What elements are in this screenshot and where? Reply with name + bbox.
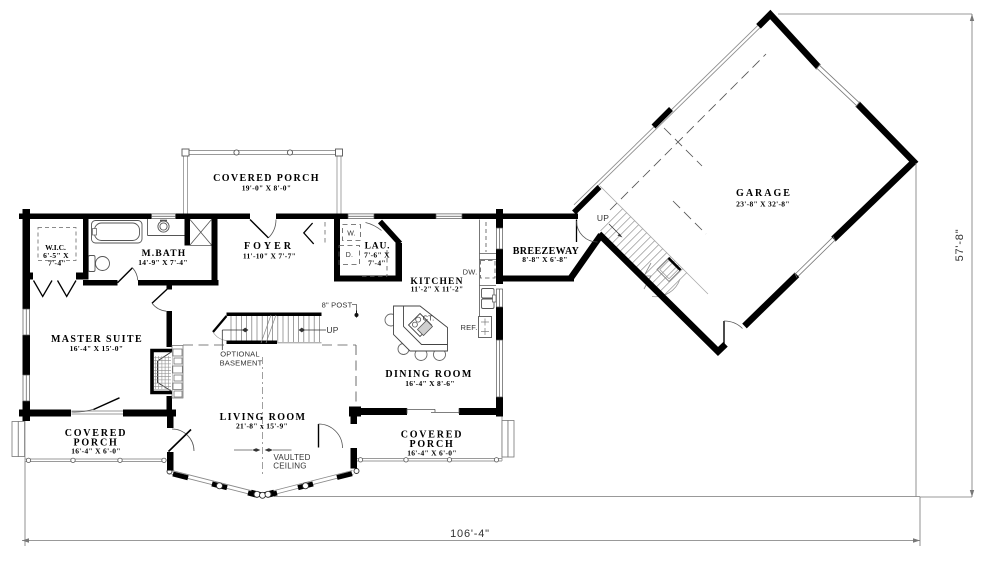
svg-text:14'-9" X 7'-4": 14'-9" X 7'-4" (138, 258, 188, 267)
svg-text:8'-8" X 6'-8": 8'-8" X 6'-8" (522, 255, 568, 264)
svg-text:21'-8" x 15'-9": 21'-8" x 15'-9" (236, 422, 288, 431)
svg-text:UP: UP (326, 325, 338, 335)
svg-text:COVERED PORCH: COVERED PORCH (213, 173, 320, 184)
svg-text:11'-2" X 11'-2": 11'-2" X 11'-2" (411, 285, 464, 294)
svg-text:FOYER: FOYER (244, 241, 294, 252)
svg-text:16'-4" X 6'-0": 16'-4" X 6'-0" (71, 447, 121, 456)
svg-text:16'-4" X 8'-6": 16'-4" X 8'-6" (405, 379, 455, 388)
svg-text:106'-4": 106'-4" (450, 528, 490, 540)
svg-text:19'-0" X 8'-0": 19'-0" X 8'-0" (242, 184, 292, 193)
svg-text:8" POST: 8" POST (322, 301, 353, 310)
svg-text:7'-4": 7'-4" (368, 259, 386, 268)
svg-text:REF.: REF. (460, 323, 477, 332)
svg-text:11'-10" X 7'-7": 11'-10" X 7'-7" (243, 252, 296, 261)
svg-text:16'-4" X 6'-0": 16'-4" X 6'-0" (407, 449, 457, 458)
svg-text:UP: UP (597, 213, 609, 223)
svg-text:CEILING: CEILING (273, 462, 306, 471)
svg-text:DW.: DW. (463, 268, 478, 277)
svg-text:W.: W. (347, 231, 356, 238)
svg-text:23'-8" X 32'-8": 23'-8" X 32'-8" (736, 200, 790, 209)
svg-text:OPTIONAL: OPTIONAL (220, 350, 260, 359)
svg-text:7'-4": 7'-4" (48, 259, 66, 268)
svg-text:D.: D. (346, 252, 353, 259)
svg-text:CT.: CT. (423, 314, 435, 323)
svg-text:GARAGE: GARAGE (736, 188, 792, 199)
svg-text:BASEMENT: BASEMENT (220, 359, 263, 368)
svg-text:57'-8": 57'-8" (954, 229, 966, 262)
svg-text:16'-4" X 15'-0": 16'-4" X 15'-0" (70, 344, 124, 353)
